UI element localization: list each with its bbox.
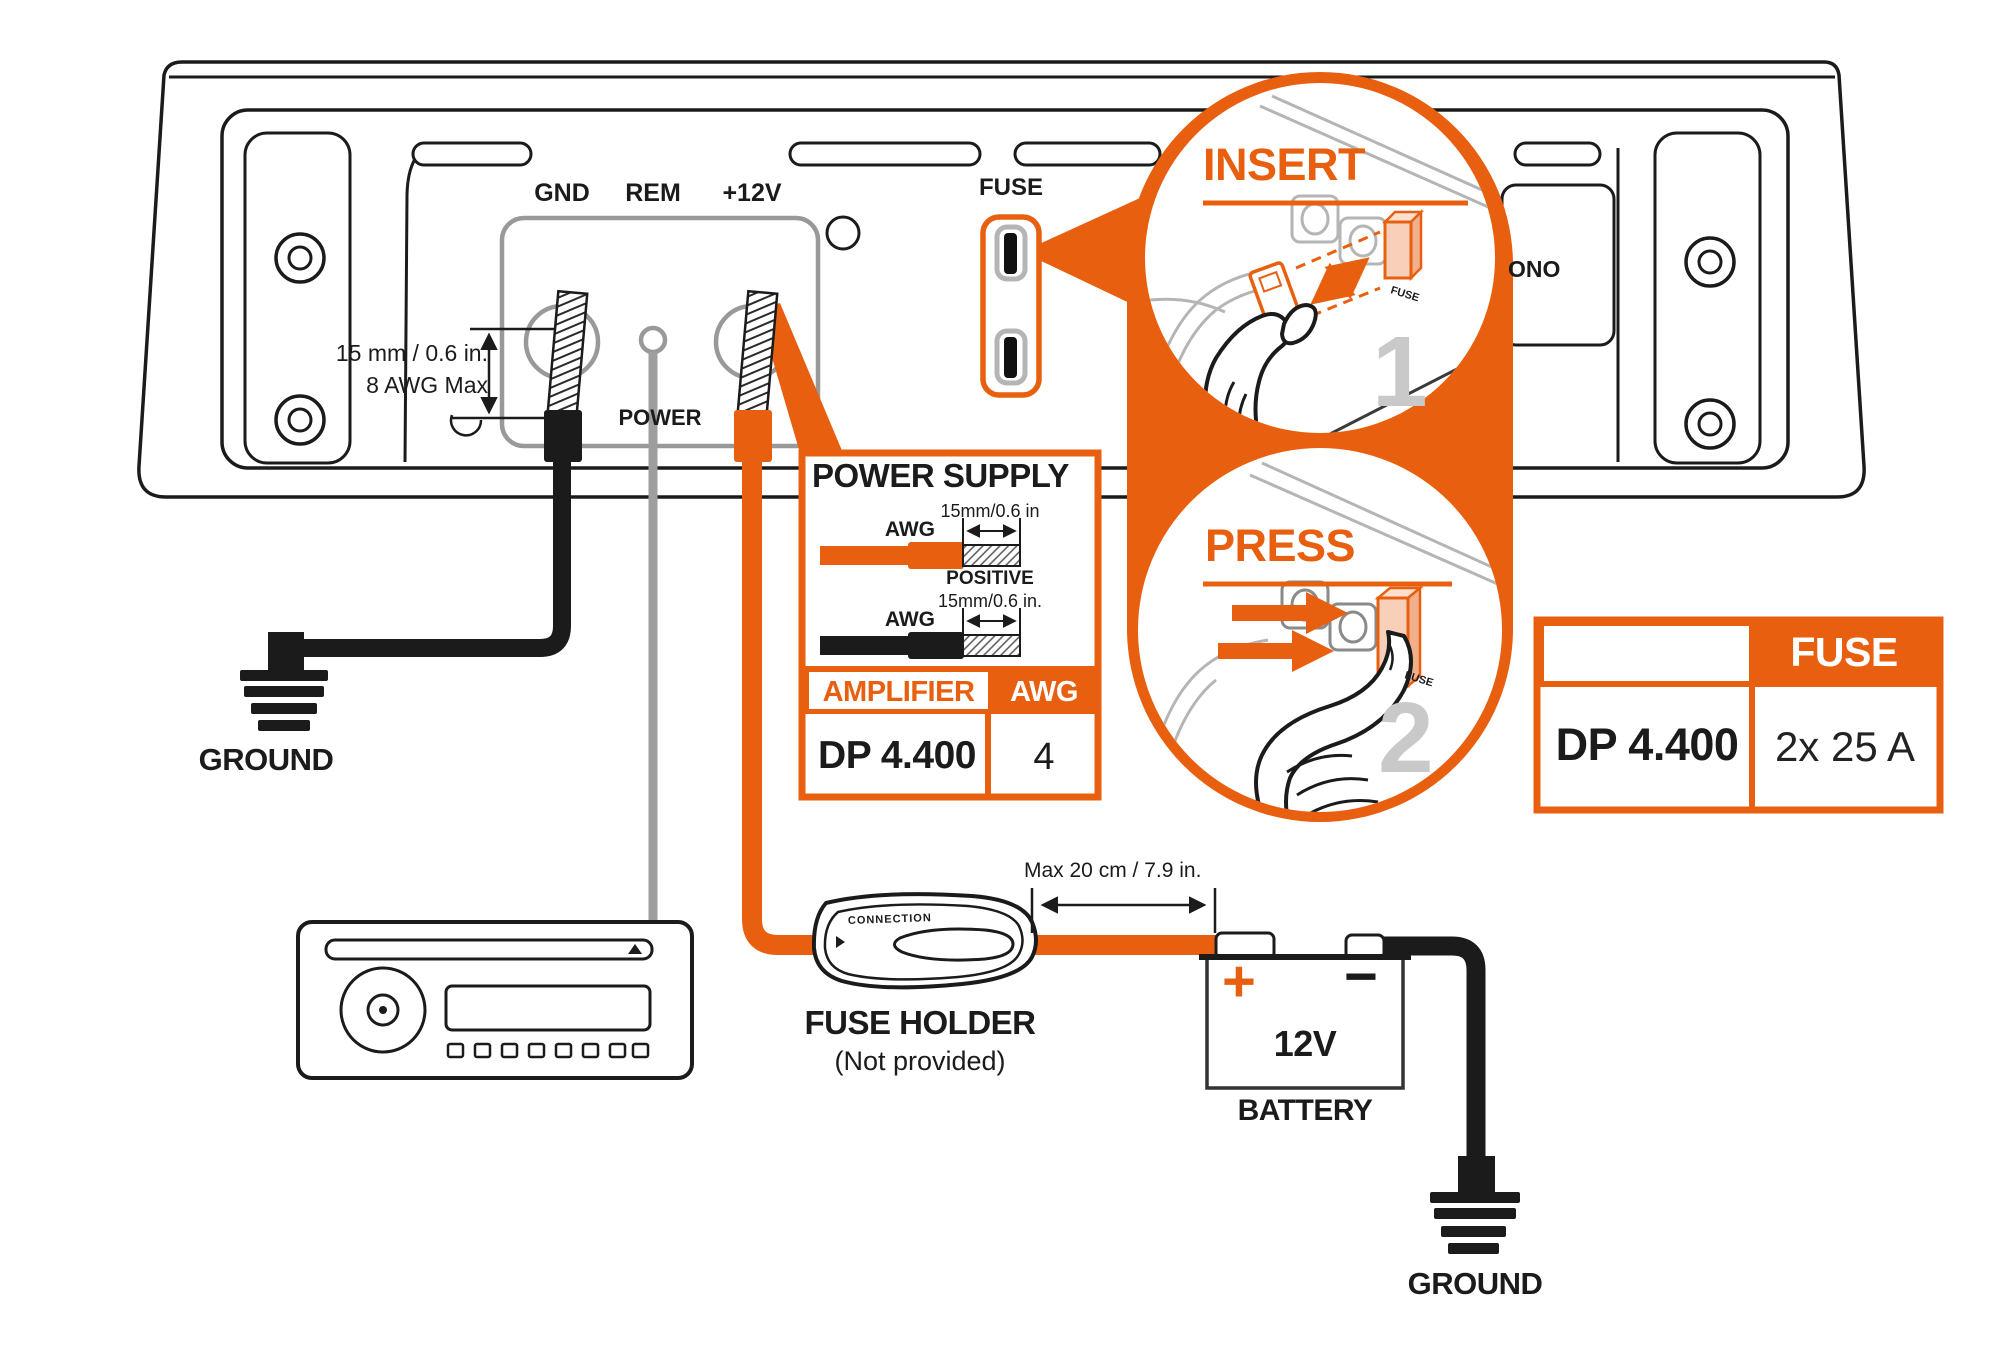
power-table-awg-value: 4 xyxy=(990,738,1098,776)
ground-left-label: GROUND xyxy=(166,744,366,775)
amp-fuse-label: FUSE xyxy=(951,176,1071,200)
fuse-slot-highlight xyxy=(1385,212,1421,278)
press-title: PRESS xyxy=(1205,523,1355,568)
plus12v-terminal-label: +12V xyxy=(702,181,802,206)
fuse-holder-title: FUSE HOLDER xyxy=(770,1006,1070,1039)
battery-voltage: 12V xyxy=(1240,1026,1370,1062)
power-table-col2: AWG xyxy=(990,678,1098,707)
positive-label: POSITIVE xyxy=(935,569,1045,588)
fuse-table-model: DP 4.400 xyxy=(1545,722,1749,767)
head-unit xyxy=(298,922,692,1078)
gnd-terminal-label: GND xyxy=(512,181,612,206)
dim-positive: 15mm/0.6 in xyxy=(935,502,1045,520)
amp-mono-partial-label: ONO xyxy=(1508,258,1560,281)
wiring-diagram: CONNECTION xyxy=(0,0,2000,1363)
awg-label-positive: AWG xyxy=(845,519,935,540)
ground-symbol-right xyxy=(1430,1156,1520,1254)
power-table-model: DP 4.400 xyxy=(806,736,988,775)
rem-terminal-label: REM xyxy=(603,181,703,206)
ground-right-label: GROUND xyxy=(1370,1268,1580,1299)
battery-minus: − xyxy=(1344,948,1377,1006)
fuse-table-value: 2x 25 A xyxy=(1753,726,1937,768)
strip-note-line1: 15 mm / 0.6 in. xyxy=(290,342,488,365)
insert-step-number: 1 xyxy=(1372,322,1428,422)
battery-plus: + xyxy=(1222,953,1255,1011)
battery-label: BATTERY xyxy=(1215,1096,1395,1126)
amp-fuse-slots xyxy=(983,217,1039,395)
dim-negative: 15mm/0.6 in. xyxy=(935,592,1045,610)
power-table-col1: AMPLIFIER xyxy=(809,678,988,707)
press-step-number: 2 xyxy=(1378,688,1434,788)
fuse-table-header: FUSE xyxy=(1752,632,1936,673)
fuse-holder-graphic: CONNECTION xyxy=(814,894,1036,987)
awg-label-negative: AWG xyxy=(845,609,935,630)
max-distance-label: Max 20 cm / 7.9 in. xyxy=(1024,860,1201,881)
rem-terminal xyxy=(641,328,665,352)
strip-note-line2: 8 AWG Max xyxy=(290,374,488,397)
insert-title: INSERT xyxy=(1203,142,1365,187)
amp-power-label: POWER xyxy=(585,407,735,429)
panel-hole xyxy=(827,217,859,249)
power-supply-title: POWER SUPPLY xyxy=(812,459,1069,492)
max-distance-annotation xyxy=(1032,888,1215,933)
fuse-holder-subtitle: (Not provided) xyxy=(770,1048,1070,1075)
